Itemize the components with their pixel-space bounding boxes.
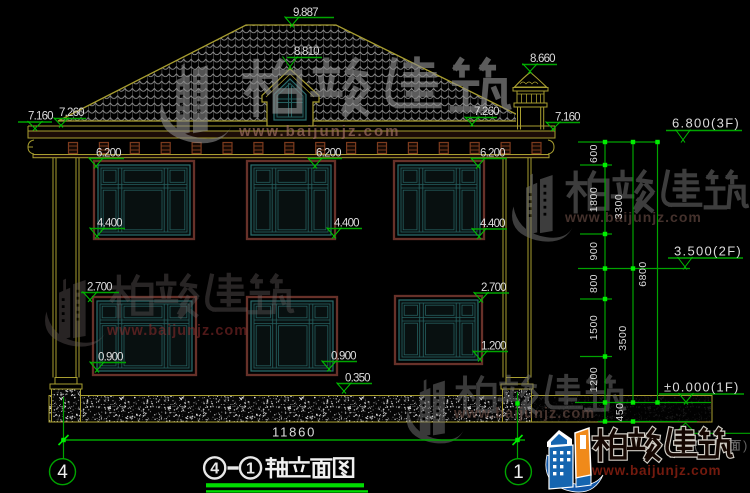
- svg-text:0.900: 0.900: [331, 351, 356, 363]
- svg-text:7.160: 7.160: [28, 111, 53, 123]
- svg-text:7.260: 7.260: [474, 106, 499, 118]
- svg-text:11860: 11860: [272, 425, 316, 440]
- svg-text:800: 800: [588, 274, 600, 293]
- svg-text:2.700: 2.700: [481, 282, 506, 294]
- svg-text:www.baijunjz.com: www.baijunjz.com: [106, 323, 248, 339]
- svg-text:(: (: [694, 438, 699, 453]
- svg-text:8.810: 8.810: [294, 46, 319, 58]
- svg-text:www.baijunjz.com: www.baijunjz.com: [238, 123, 400, 140]
- svg-text:7.160: 7.160: [555, 112, 580, 124]
- svg-text:1800: 1800: [588, 187, 600, 212]
- svg-text:1200: 1200: [588, 367, 600, 392]
- svg-text:900: 900: [588, 241, 600, 260]
- svg-text:1.200: 1.200: [481, 341, 506, 353]
- svg-text:6.200: 6.200: [480, 148, 505, 160]
- svg-text:2.700: 2.700: [87, 282, 112, 294]
- svg-text:1: 1: [246, 461, 255, 478]
- svg-text:6.200: 6.200: [316, 148, 341, 160]
- svg-text:4: 4: [210, 461, 219, 478]
- svg-text:600: 600: [588, 144, 600, 163]
- svg-text:6.800(3F): 6.800(3F): [672, 116, 740, 131]
- svg-text:9.887: 9.887: [293, 7, 318, 19]
- svg-text:0.350: 0.350: [345, 373, 370, 385]
- svg-text:3300: 3300: [613, 194, 625, 219]
- svg-text:4.400: 4.400: [97, 218, 122, 230]
- svg-text:): ): [743, 438, 747, 453]
- svg-text:4.400: 4.400: [334, 218, 359, 230]
- svg-text:4: 4: [57, 462, 68, 483]
- svg-text:4.400: 4.400: [480, 218, 505, 230]
- svg-text:7.260: 7.260: [59, 107, 84, 119]
- svg-text:www.baijunjz.com: www.baijunjz.com: [453, 406, 595, 422]
- svg-text:1500: 1500: [588, 315, 600, 340]
- svg-text:1: 1: [513, 462, 524, 483]
- svg-text:3500: 3500: [617, 325, 629, 350]
- svg-text:6800: 6800: [637, 261, 649, 286]
- svg-text:6.200: 6.200: [96, 148, 121, 160]
- svg-text:±0.000(1F): ±0.000(1F): [664, 380, 740, 395]
- svg-text:www.baijunjz.com: www.baijunjz.com: [591, 463, 721, 478]
- svg-text:450: 450: [614, 402, 626, 421]
- svg-text:0.900: 0.900: [98, 352, 123, 364]
- svg-text:3.500(2F): 3.500(2F): [674, 244, 742, 259]
- svg-text:8.660: 8.660: [530, 53, 555, 65]
